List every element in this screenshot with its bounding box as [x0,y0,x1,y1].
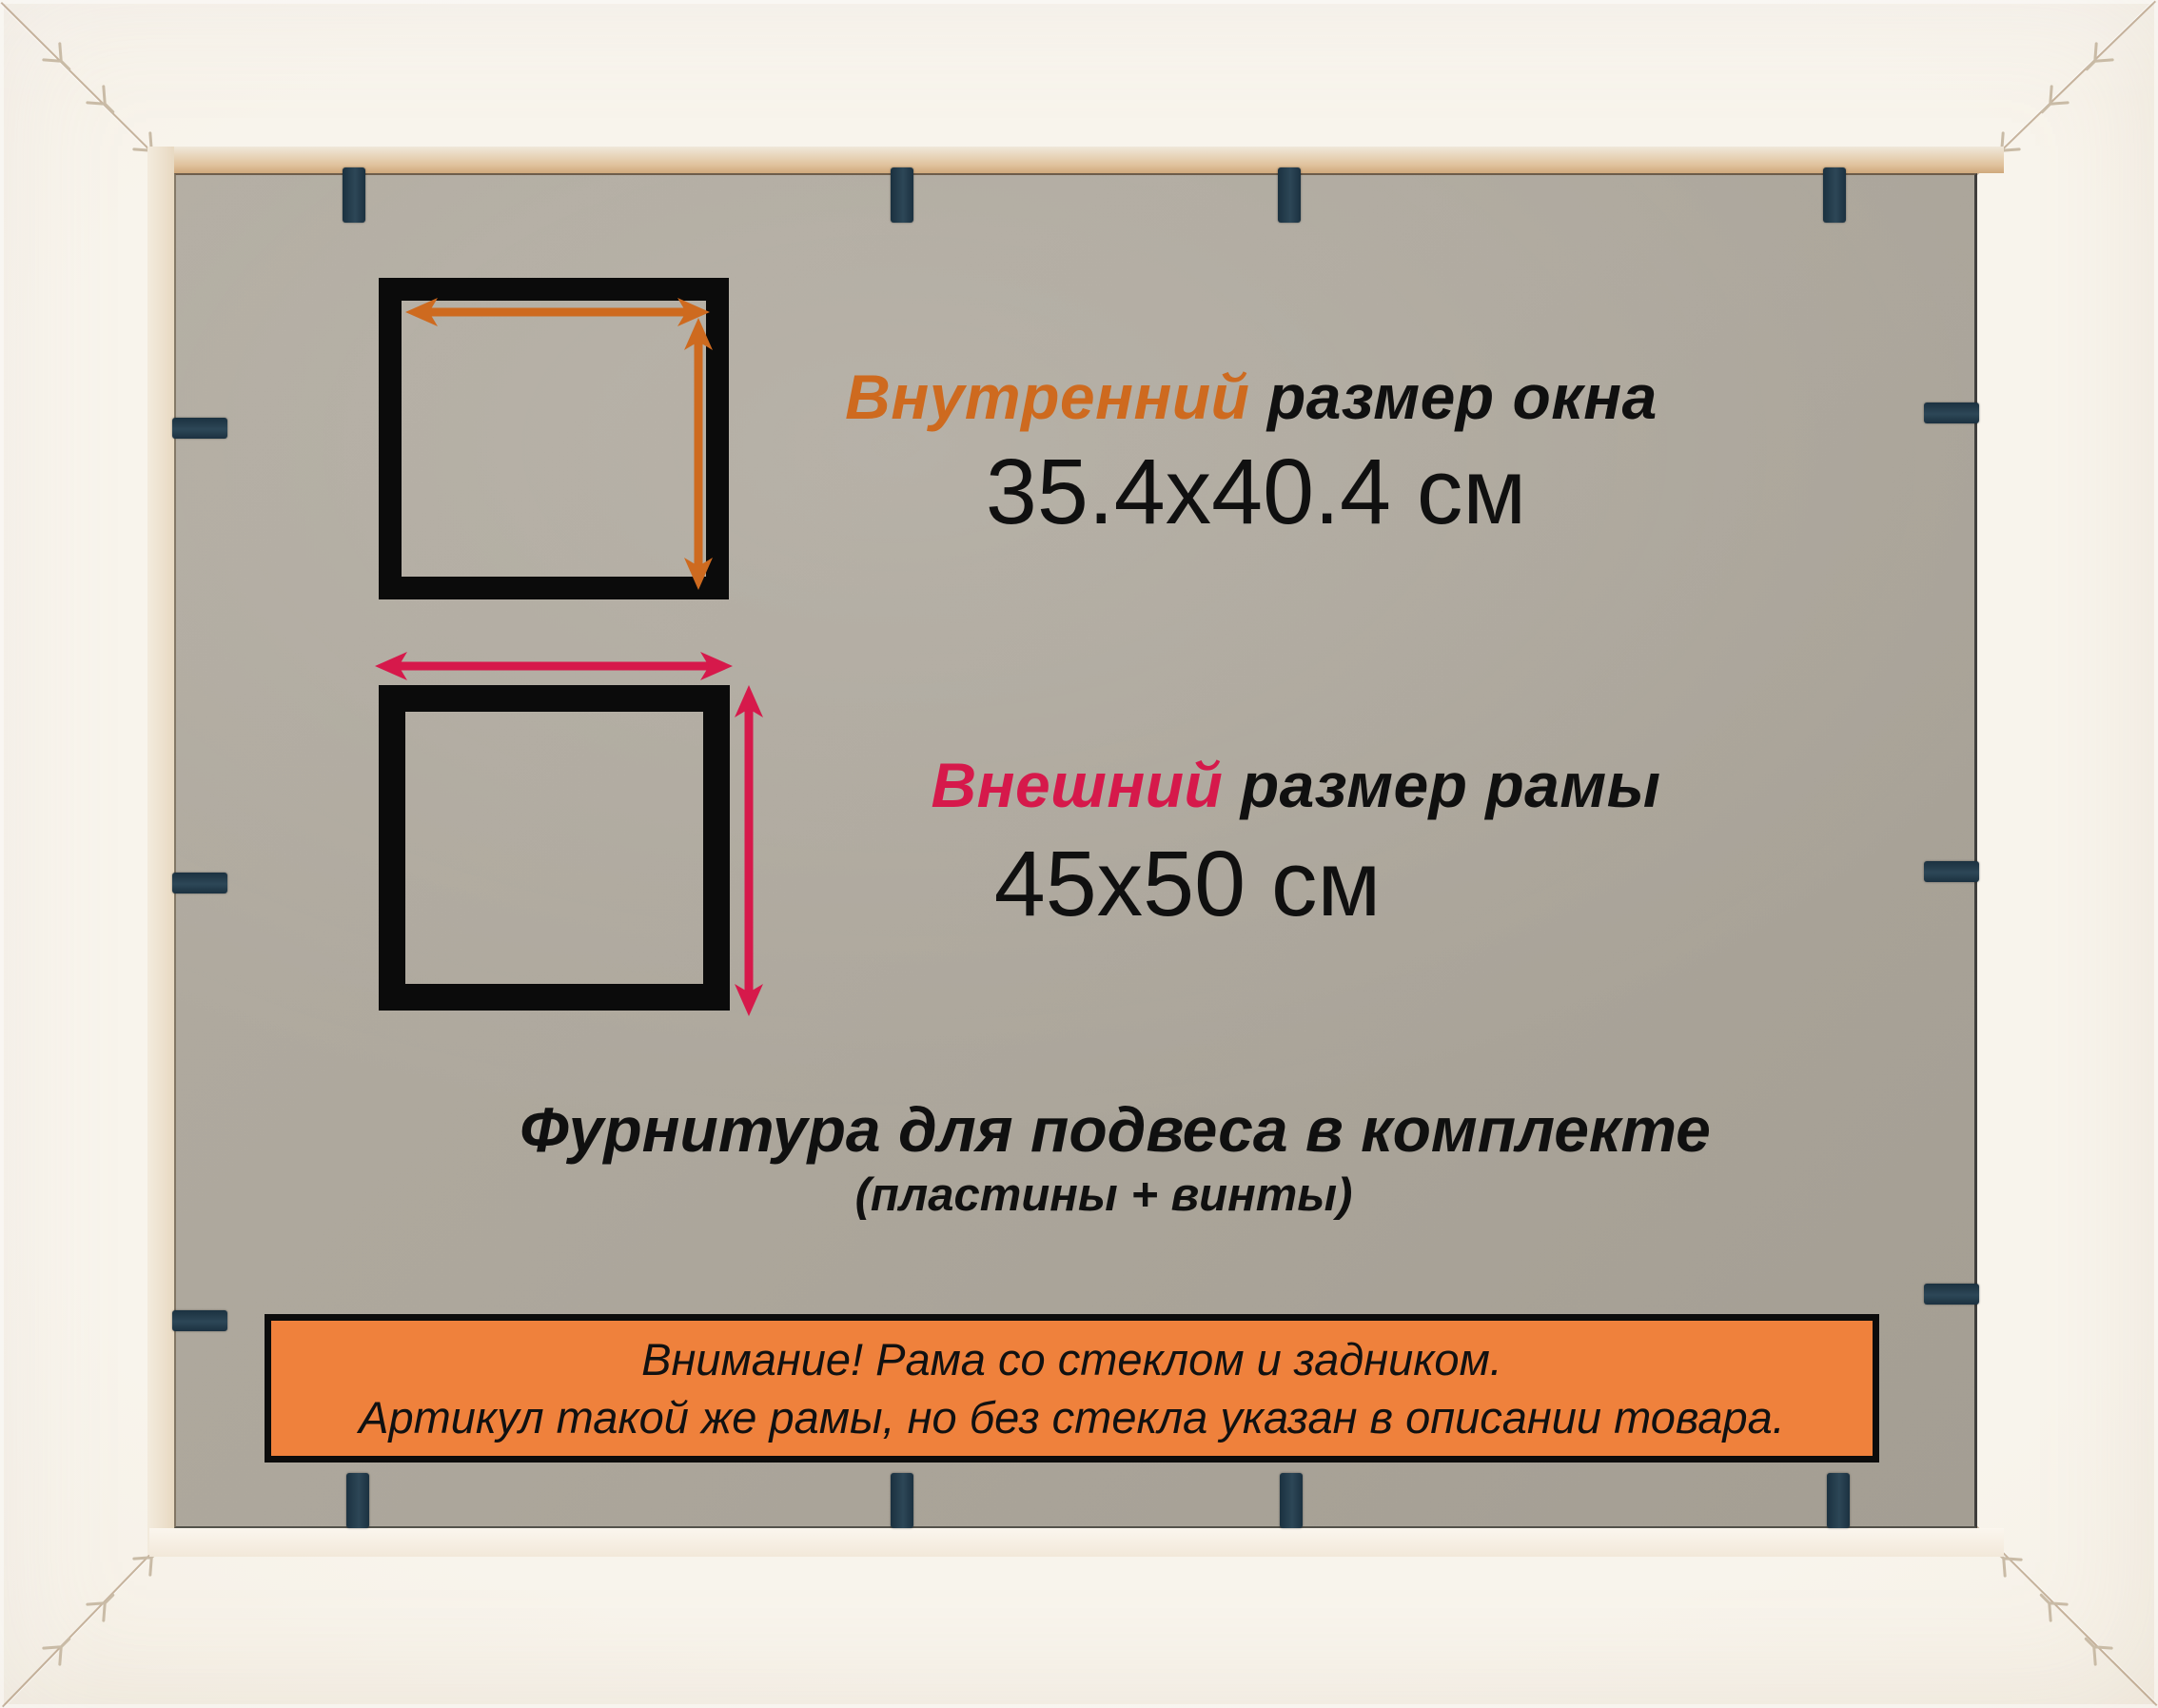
retainer-clip-icon [346,1473,369,1528]
inner-size-title-rest: размер окна [1267,362,1658,432]
retainer-clip-icon [1280,1473,1303,1528]
retainer-clip-icon [343,167,365,223]
inner-width-arrow-icon [403,295,712,329]
retainer-clip-icon [172,873,227,893]
notice-banner-line-1: Внимание! Рама со стеклом и задником. [271,1336,1873,1383]
hardware-note-title: Фурнитура для подвеса в комплекте [449,1098,1781,1161]
notice-banner: Внимание! Рама со стеклом и задником. Ар… [265,1314,1879,1463]
frame-inner-lip-right [1977,147,2006,1555]
frame-inner-lip-bottom [149,1528,2004,1557]
inner-size-title-accent: Внутренний [845,362,1249,432]
hardware-note-subtitle: (пластины + винты) [628,1172,1579,1219]
retainer-clip-icon [1823,167,1846,223]
outer-size-value: 45x50 см [712,837,1663,930]
outer-size-diagram-square [379,685,730,1011]
outer-size-title-rest: размер рамы [1241,750,1661,820]
frame-inner-lip-left [147,147,174,1555]
retainer-clip-icon [172,1310,227,1331]
retainer-clip-icon [891,167,913,223]
retainer-clip-icon [891,1473,913,1528]
retainer-clip-icon [1924,1284,1979,1305]
corner-staple-icon [2027,1580,2081,1635]
retainer-clip-icon [1924,861,1979,882]
corner-staple-icon [2071,1624,2126,1679]
retainer-clip-icon [1827,1473,1850,1528]
inner-height-arrow-icon [681,316,716,592]
framed-product-photo: Внутреннийразмер окна 35.4x40.4 см Внешн… [0,0,2158,1708]
frame-inner-lip-top [149,147,2004,173]
outer-size-title-accent: Внешний [931,750,1223,820]
inner-size-title: Внутреннийразмер окна [680,365,1822,428]
outer-size-title: Внешнийразмер рамы [725,754,1867,816]
outer-width-arrow-icon [373,649,735,683]
retainer-clip-icon [1278,167,1301,223]
retainer-clip-icon [1924,402,1979,423]
inner-size-value: 35.4x40.4 см [780,445,1732,538]
retainer-clip-icon [172,418,227,439]
notice-banner-line-2: Артикул такой же рамы, но без стекла ука… [271,1394,1873,1441]
